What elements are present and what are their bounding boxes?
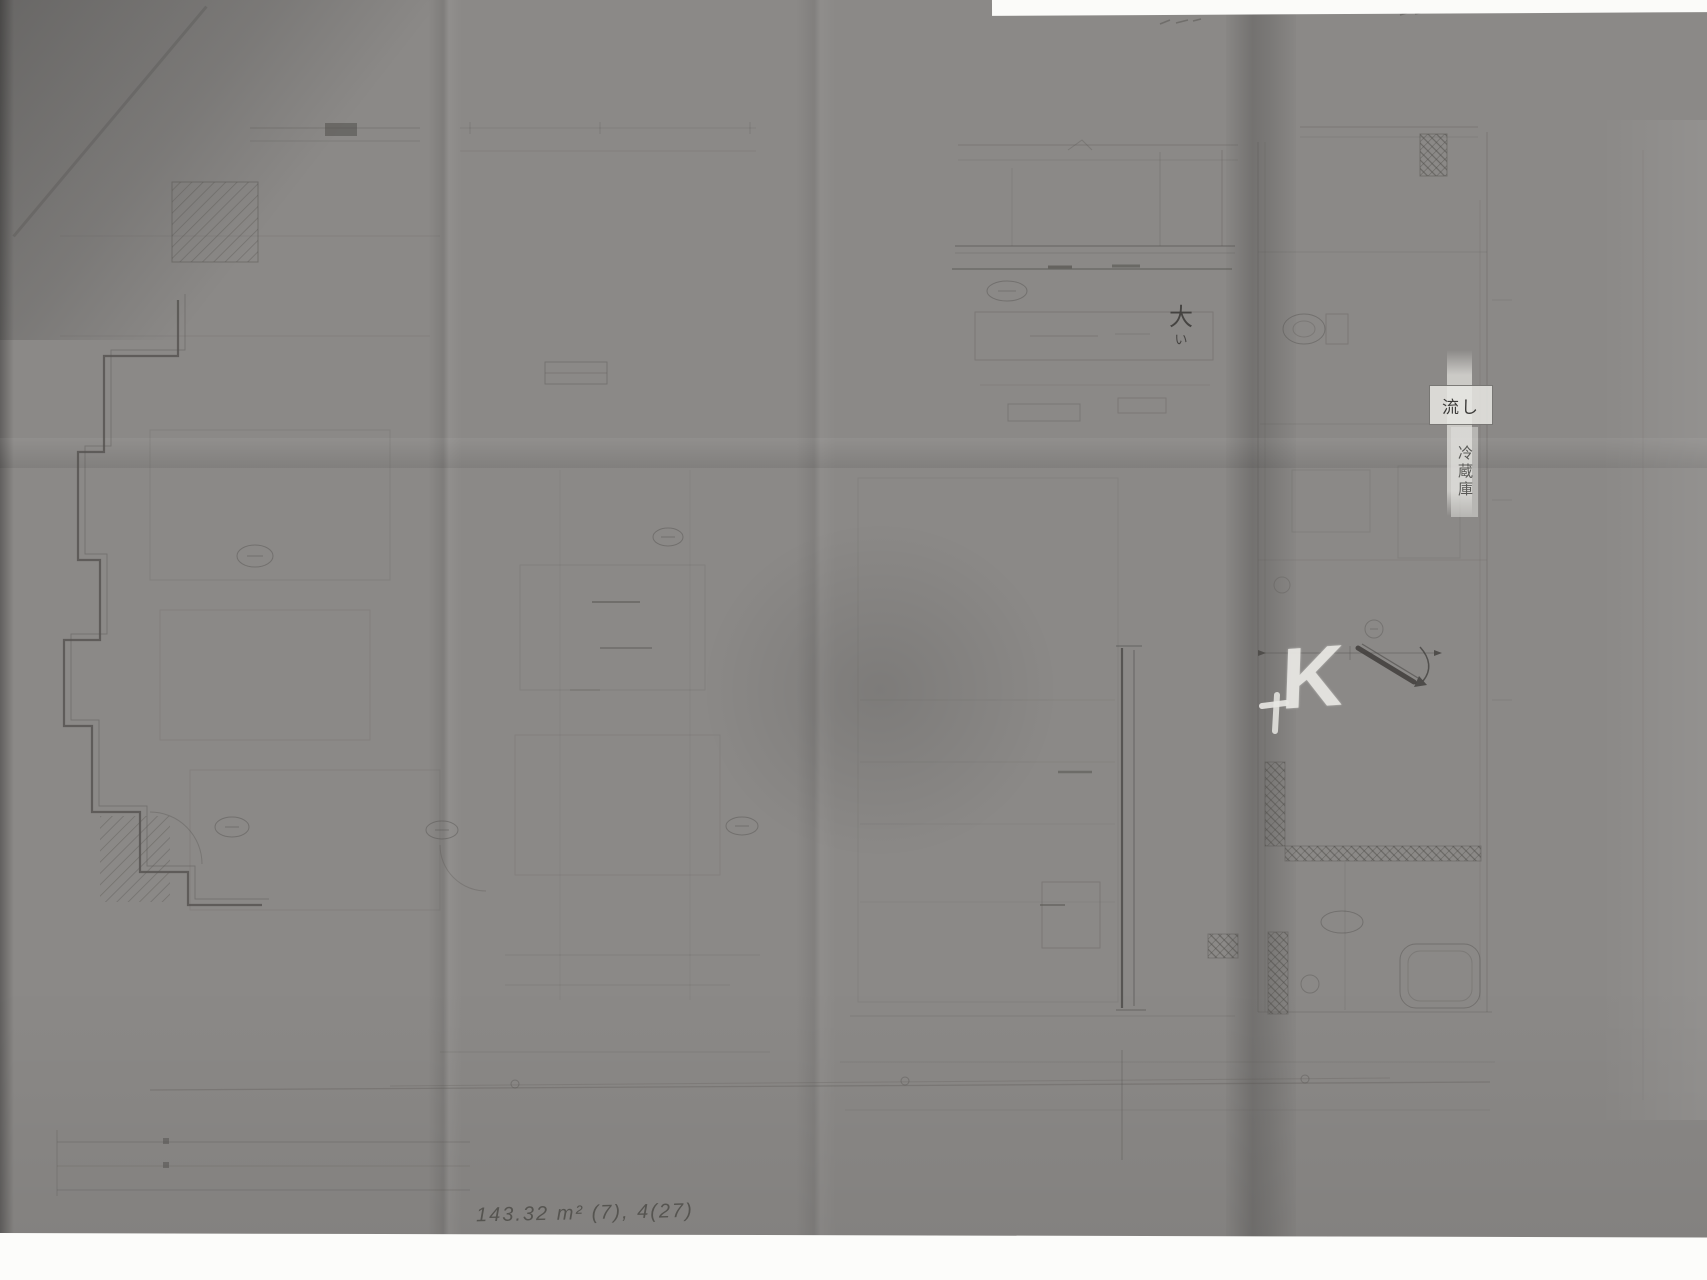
kanji-note-bottom: い (1162, 333, 1200, 346)
hatched-wall (1285, 846, 1481, 861)
bidet-symbol (1321, 911, 1363, 933)
bathroom-linework (1208, 127, 1643, 1100)
kanji-note: 大 い (1162, 306, 1200, 346)
basin-symbol (1301, 975, 1319, 993)
white-paint-k-mark: K (1279, 631, 1362, 737)
hatched-wall (1208, 934, 1238, 958)
photo-margin-bottom (0, 1233, 1707, 1280)
photo-of-floorplan: 流し 冷蔵庫 大 い 143.32 m² (7), 4(27) K (0, 0, 1707, 1280)
center-left-linework (390, 122, 1390, 1088)
pencil-linework (0, 0, 1707, 1280)
left-wing-linework (57, 123, 758, 1196)
door-arc (440, 845, 486, 891)
sink-label-text: 流し (1442, 393, 1480, 418)
dimension-lines-bottom-left (57, 1130, 470, 1196)
stepped-wall-outline (64, 300, 262, 905)
hatched-wall (1268, 932, 1288, 1014)
symbol-ellipses (215, 528, 758, 839)
kitchen-linework (952, 9, 1424, 421)
toilet-symbol (1283, 314, 1325, 344)
hatched-wall (1265, 762, 1285, 846)
refrigerator-label-text: 冷蔵庫 (1454, 445, 1475, 499)
revision-arrow (1358, 644, 1429, 687)
kanji-note-top: 大 (1162, 306, 1200, 330)
refrigerator-label: 冷蔵庫 (1451, 427, 1478, 517)
sink-label: 流し (1429, 385, 1493, 425)
handwritten-area-note: 143.32 m² (7), 4(27) (476, 1200, 706, 1228)
hatched-wall (1420, 134, 1447, 176)
